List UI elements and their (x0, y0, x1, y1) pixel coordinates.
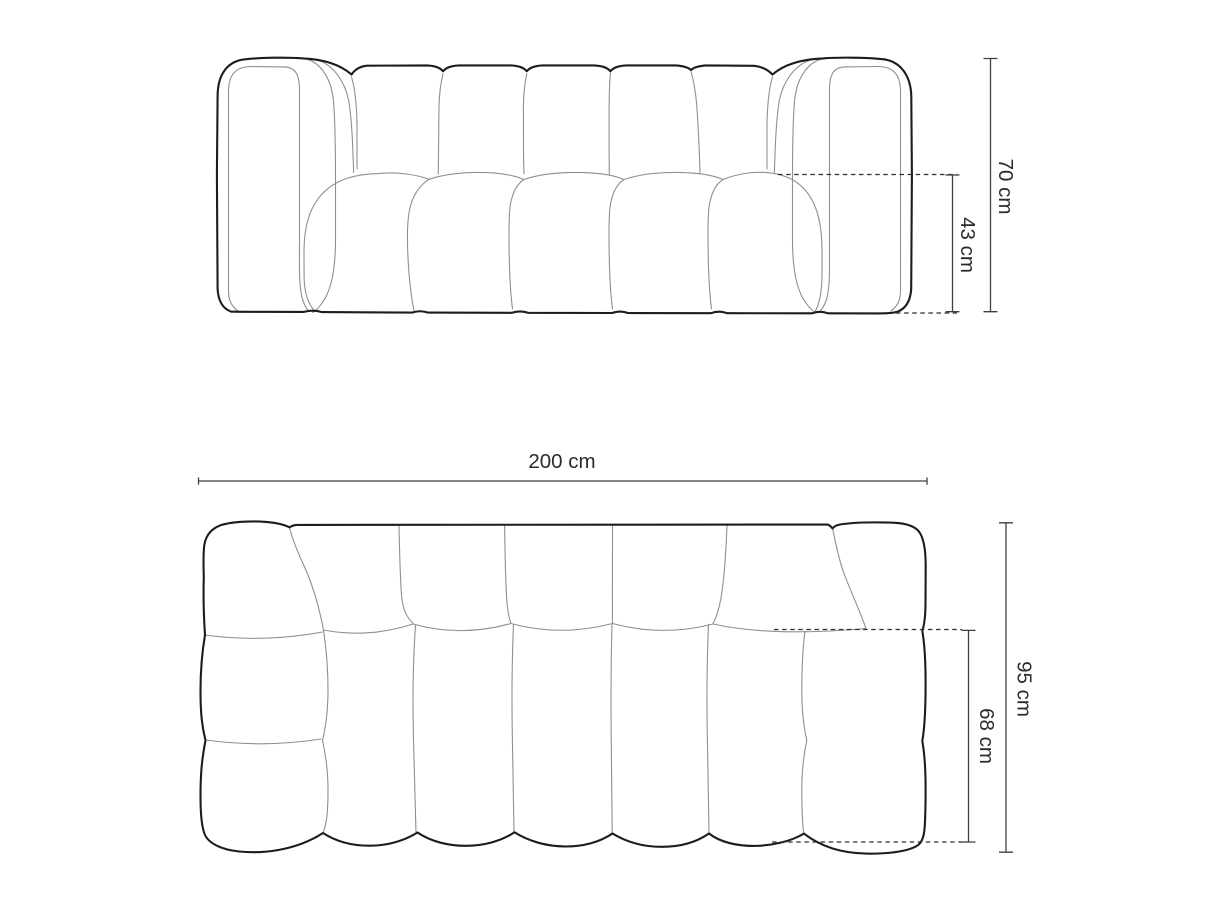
svg-text:70 cm: 70 cm (994, 159, 1017, 215)
svg-text:68 cm: 68 cm (975, 708, 998, 764)
svg-text:95 cm: 95 cm (1013, 661, 1036, 717)
svg-text:43 cm: 43 cm (956, 217, 979, 273)
svg-text:200 cm: 200 cm (528, 450, 595, 473)
